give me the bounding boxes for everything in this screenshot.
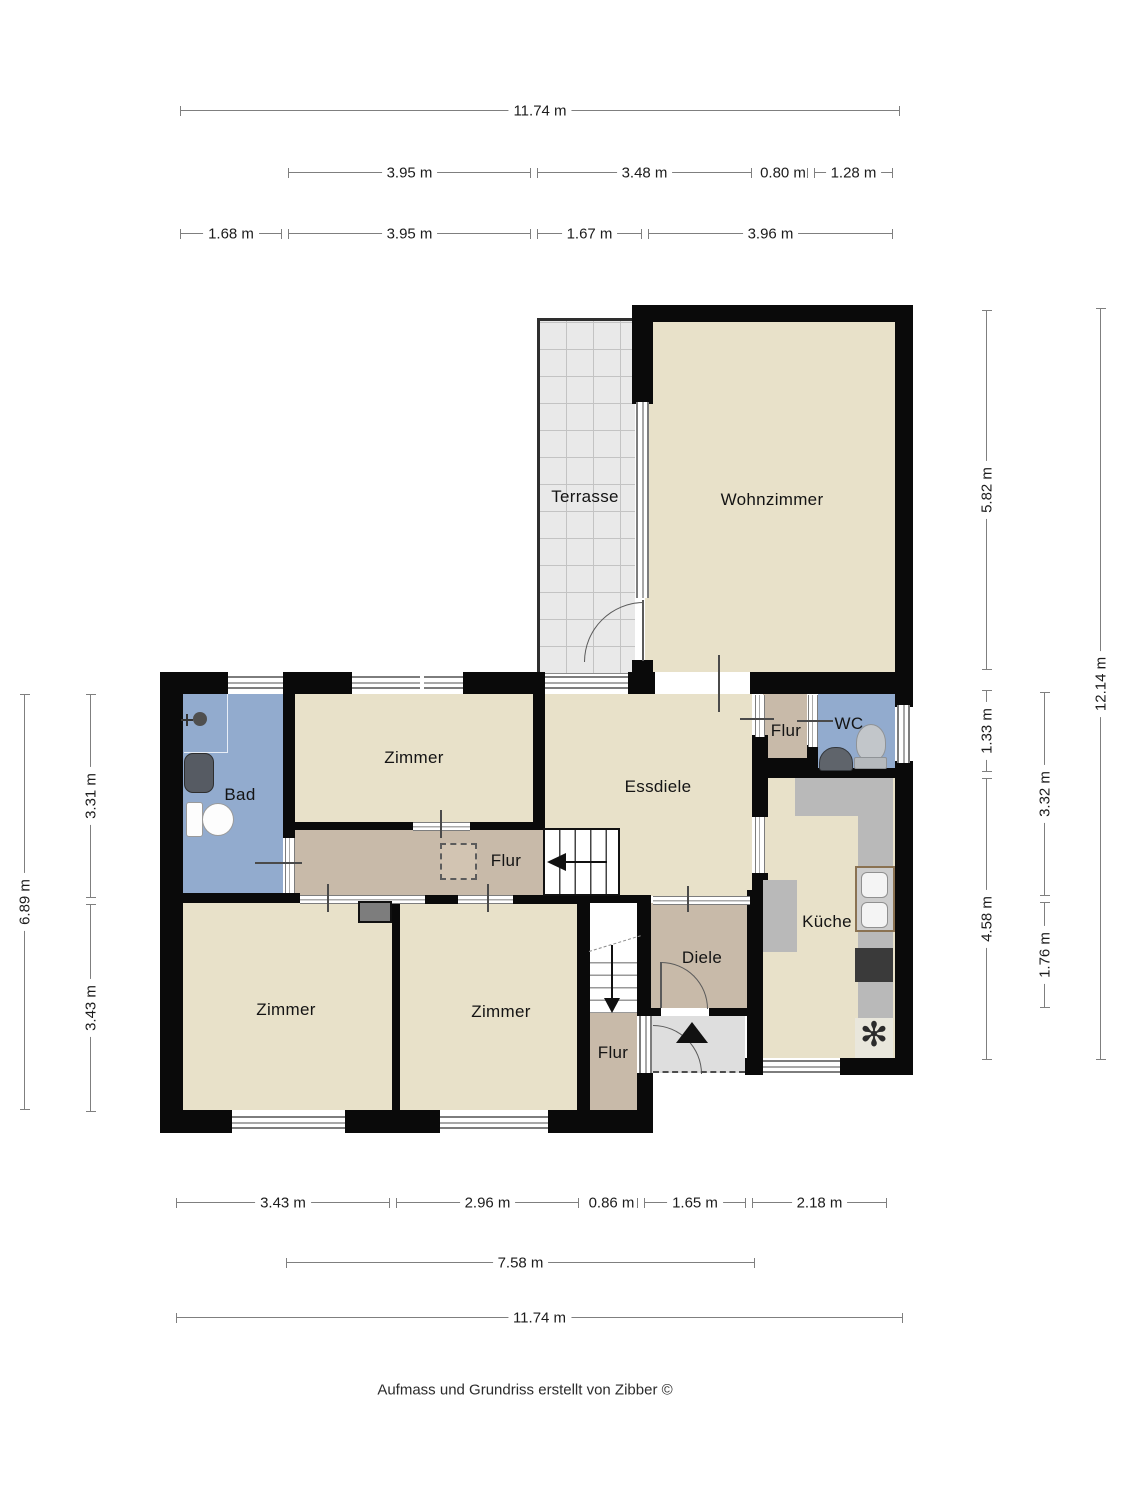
room-label-zimmer-bm: Zimmer	[471, 1002, 530, 1022]
room-label-wc: WC	[835, 714, 864, 734]
room-label-zimmer-top: Zimmer	[384, 748, 443, 768]
wall	[637, 1073, 653, 1115]
dimension: 5.82 m	[986, 310, 987, 670]
wall	[895, 761, 913, 1075]
window	[232, 1116, 345, 1129]
dimension-label: 2.96 m	[460, 1195, 516, 1212]
stair-down-arrow	[604, 998, 620, 1013]
dimension-label: 1.33 m	[979, 702, 996, 760]
dimension-label: 2.18 m	[792, 1195, 848, 1212]
dimension-left-outer: 6.89 m	[24, 694, 25, 1110]
dimension-total-height: 12.14 m	[1100, 308, 1101, 1060]
dimension-label: 1.28 m	[826, 165, 882, 182]
room-label-bad: Bad	[224, 785, 255, 805]
dimension: 1.33 m	[986, 690, 987, 772]
dimension-label: 3.95 m	[382, 226, 438, 243]
dimension-label: 3.96 m	[743, 226, 799, 243]
shaft-dashed-box	[440, 843, 477, 880]
window	[228, 676, 283, 689]
shower-faucet	[186, 714, 188, 726]
diele-door-leaf	[660, 962, 662, 1008]
wall	[840, 1058, 913, 1075]
dimension-label: 1.68 m	[203, 226, 259, 243]
dimension: 3.95 m	[288, 172, 531, 173]
dimension: 3.31 m	[90, 694, 91, 898]
dimension-label: 1.65 m	[667, 1195, 723, 1212]
toilet-bowl	[202, 803, 234, 836]
dimension: 0.80 m	[758, 172, 808, 173]
kitchen-counter-left	[763, 880, 797, 952]
opening	[755, 817, 765, 873]
wall	[747, 890, 763, 1075]
window	[352, 676, 420, 689]
stove-fan-icon: ✻	[855, 1015, 893, 1055]
dimension-label: 3.95 m	[382, 165, 438, 182]
room-label-essdiele: Essdiele	[625, 777, 692, 797]
dimension: 3.32 m	[1044, 692, 1045, 896]
glazed-door	[458, 895, 513, 904]
divider-line	[487, 884, 489, 912]
dimension: 0.86 m	[585, 1202, 638, 1203]
stair-down-arrow-stem	[611, 945, 613, 1000]
wall	[160, 672, 228, 694]
wall	[709, 1008, 763, 1016]
wc-sink	[819, 747, 853, 771]
dimension-total-width-bottom: 11.74 m	[176, 1317, 903, 1318]
kitchen-sink-basin	[861, 872, 888, 898]
wall	[345, 1110, 440, 1133]
dimension-label: 4.58 m	[979, 890, 996, 948]
wall	[160, 1110, 232, 1133]
glazed-partition	[653, 896, 750, 905]
dimension-total-width: 11.74 m	[180, 110, 900, 111]
floor-plan: ✻ Terrasse Wohnzimmer Zimmer Bad Essdiel…	[0, 0, 1125, 1500]
shower	[184, 694, 228, 753]
wc-toilet-tank	[854, 757, 887, 769]
room-label-flur-top: Flur	[771, 721, 801, 741]
room-label-diele: Diele	[682, 948, 722, 968]
dimension: 4.58 m	[986, 778, 987, 1060]
dimension-label: 11.74 m	[508, 103, 571, 120]
wall	[632, 660, 653, 694]
wall	[750, 672, 913, 694]
room-label-wohnzimmer: Wohnzimmer	[721, 490, 824, 510]
wall	[183, 893, 297, 903]
room-label-kueche: Küche	[802, 912, 852, 932]
dimension-label: 12.14 m	[1093, 651, 1110, 717]
chimney-block	[358, 901, 392, 923]
credit-text: Aufmass und Grundriss erstellt von Zibbe…	[377, 1382, 672, 1399]
toilet-tank	[186, 802, 203, 837]
dimension: 3.43 m	[176, 1202, 390, 1203]
wall	[895, 305, 913, 707]
dimension-label: 3.43 m	[255, 1195, 311, 1212]
wall	[651, 1008, 661, 1016]
wall	[632, 305, 653, 404]
wall	[392, 901, 400, 1110]
dimension-label: 0.86 m	[584, 1195, 640, 1212]
kitchen-stove	[855, 948, 893, 982]
dimension: 2.18 m	[752, 1202, 887, 1203]
wall	[752, 758, 817, 778]
dimension: 1.67 m	[537, 233, 642, 234]
entrance-threshold	[653, 1071, 745, 1073]
window	[636, 402, 649, 598]
dimension-label: 7.58 m	[493, 1255, 549, 1272]
wall	[632, 305, 913, 322]
dimension-label: 3.43 m	[83, 979, 100, 1037]
divider-line	[255, 862, 302, 864]
dimension-label: 3.48 m	[617, 165, 673, 182]
divider-line	[797, 720, 833, 722]
divider-line	[440, 810, 442, 838]
terrace-window	[545, 676, 628, 689]
room-label-flur-mid: Flur	[491, 851, 521, 871]
dimension-label: 3.31 m	[83, 767, 100, 825]
kitchen-sink-basin	[861, 902, 888, 928]
room-label-zimmer-bl: Zimmer	[256, 1000, 315, 1020]
wc-window	[897, 705, 910, 763]
wall	[425, 895, 458, 904]
dimension: 1.68 m	[180, 233, 282, 234]
room-label-terrasse: Terrasse	[551, 487, 619, 507]
wall	[533, 672, 545, 830]
dimension: 2.96 m	[396, 1202, 579, 1203]
terrace-door-leaf	[642, 600, 644, 661]
room-door	[413, 822, 470, 831]
dimension: 1.65 m	[644, 1202, 746, 1203]
window	[763, 1060, 840, 1073]
glazed-door	[755, 695, 765, 737]
divider-line	[718, 655, 720, 712]
wall	[160, 672, 183, 1133]
wall	[283, 672, 295, 838]
divider-line	[327, 884, 329, 912]
room-label-flur-bottom: Flur	[598, 1043, 628, 1063]
bath-door	[285, 838, 295, 893]
dimension-label: 3.32 m	[1037, 765, 1054, 823]
dimension-label: 11.74 m	[508, 1310, 571, 1327]
entrance-door	[639, 1016, 652, 1073]
dimension: 3.48 m	[537, 172, 752, 173]
stair-up-arrow	[547, 853, 566, 871]
dimension-label: 5.82 m	[979, 461, 996, 519]
dimension-label: 0.80 m	[755, 165, 811, 182]
wall	[513, 895, 577, 904]
dimension-label: 1.67 m	[562, 226, 618, 243]
dimension: 3.96 m	[648, 233, 893, 234]
dimension-label: 1.76 m	[1037, 926, 1054, 984]
kitchen-counter-top	[795, 778, 893, 816]
dimension: 1.28 m	[814, 172, 893, 173]
dimension-label: 6.89 m	[17, 873, 34, 931]
stair-up-arrow-stem	[565, 861, 607, 863]
bath-sink	[184, 753, 214, 793]
dimension: 3.43 m	[90, 904, 91, 1112]
divider-line	[740, 718, 774, 720]
wall	[577, 903, 590, 1133]
divider-line	[687, 886, 689, 912]
wall	[295, 822, 413, 830]
dimension: 3.95 m	[288, 233, 531, 234]
window	[424, 676, 463, 689]
shower-head	[193, 712, 207, 726]
entrance-arrow	[676, 1022, 708, 1043]
wall	[637, 903, 651, 1016]
dimension: 7.58 m	[286, 1262, 755, 1263]
dimension: 1.76 m	[1044, 902, 1045, 1008]
window	[440, 1116, 548, 1129]
